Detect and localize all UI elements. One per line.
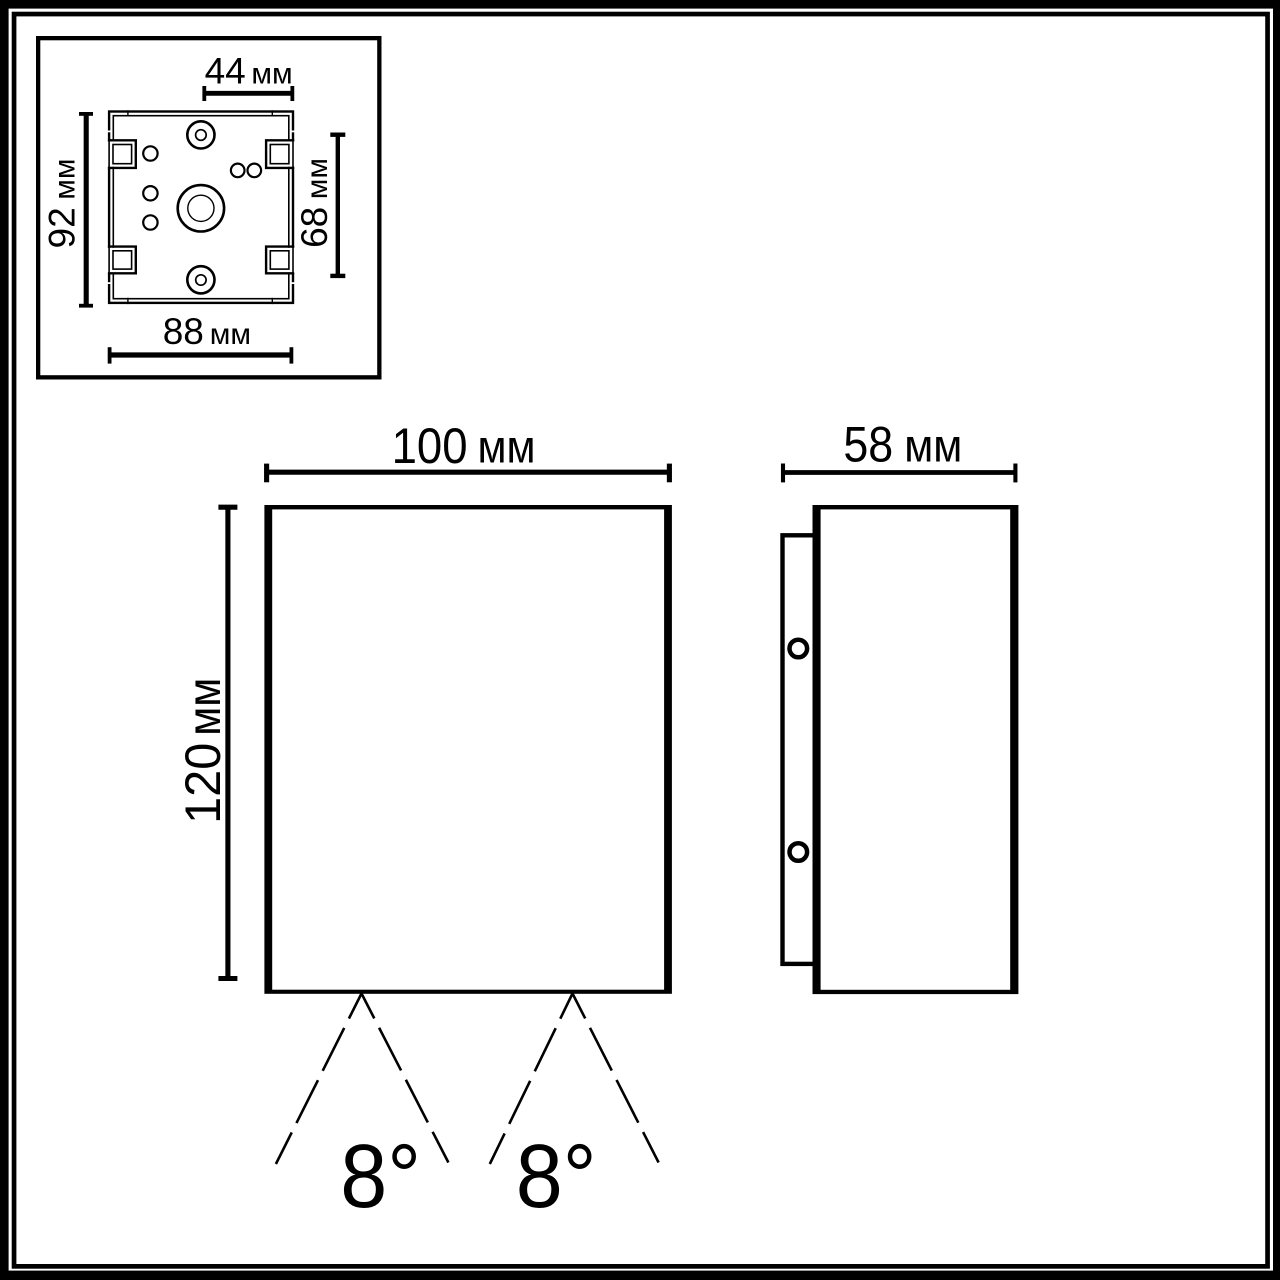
svg-text:92: 92	[42, 207, 83, 248]
svg-text:44: 44	[205, 50, 246, 91]
svg-text:мм: мм	[301, 158, 334, 199]
svg-text:мм: мм	[49, 159, 82, 200]
svg-text:мм: мм	[210, 318, 251, 351]
svg-text:мм: мм	[251, 57, 292, 90]
svg-text:8°: 8°	[516, 1127, 597, 1227]
svg-text:мм: мм	[904, 420, 962, 472]
svg-text:120: 120	[175, 743, 231, 824]
svg-text:мм: мм	[478, 421, 536, 473]
svg-text:8°: 8°	[340, 1127, 421, 1227]
svg-text:мм: мм	[178, 678, 230, 736]
svg-text:88: 88	[163, 311, 204, 352]
svg-text:68: 68	[294, 207, 335, 248]
svg-text:58: 58	[843, 417, 893, 473]
svg-text:100: 100	[392, 418, 468, 474]
